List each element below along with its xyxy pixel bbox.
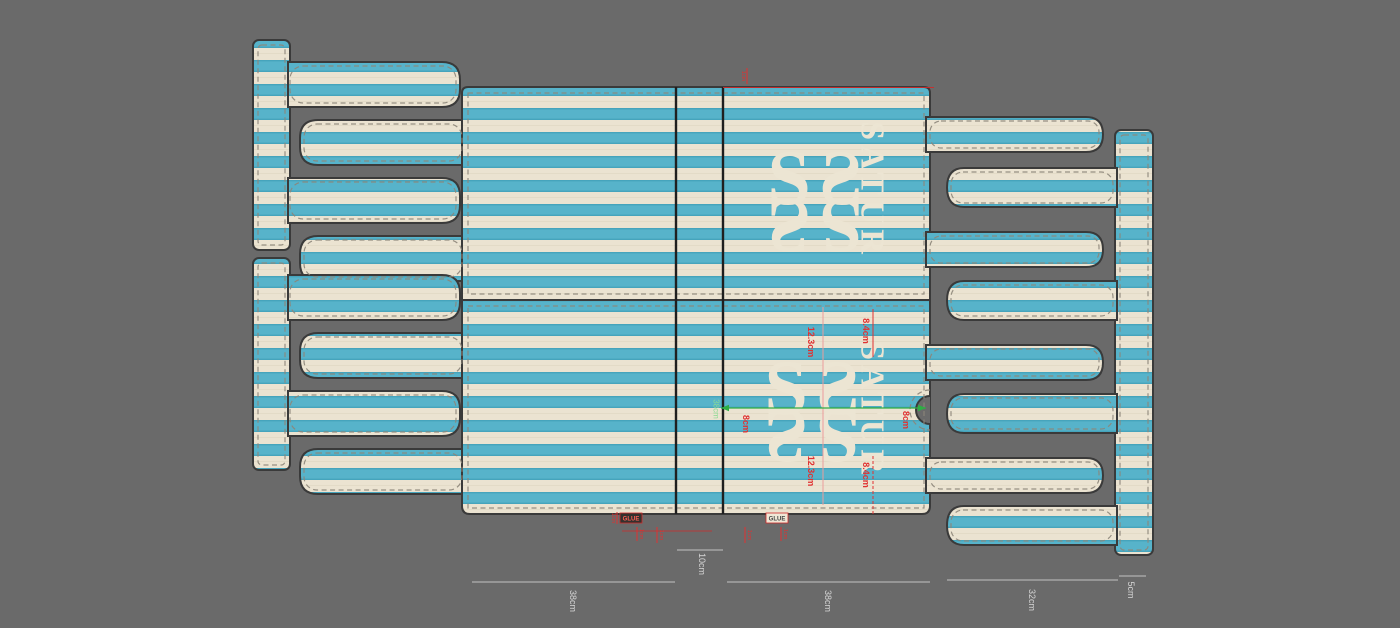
right-spine-flap[interactable] — [947, 168, 1117, 207]
dimension-label: 10cm — [697, 553, 707, 575]
micro-tick-label: 1cm — [746, 530, 752, 541]
right-spine-flap[interactable] — [947, 281, 1117, 320]
left-flap[interactable] — [288, 275, 460, 320]
brand-name-top: SATUR — [854, 121, 891, 259]
panel-flap-right[interactable] — [926, 345, 1103, 380]
design-canvas: S S S S SATUR S S S S SATUR 38cm 8.4cm 1… — [0, 0, 1400, 628]
left-flap[interactable] — [288, 391, 460, 436]
micro-tick-label: 1cm — [782, 529, 788, 540]
red-dim-label: 8.4cm — [861, 462, 871, 488]
dieline-canvas: S S S S SATUR S S S S SATUR 38cm 8.4cm 1… — [0, 0, 1400, 628]
left-flap[interactable] — [288, 62, 460, 107]
glue-label: GLUE — [623, 517, 640, 523]
micro-tick-label: 1cm — [610, 513, 616, 524]
red-dim-label: 8.4cm — [861, 318, 871, 344]
micro-tick-label: 1cm — [658, 530, 664, 541]
panel-flap-right[interactable] — [926, 458, 1103, 493]
red-dim-label: 8cm — [741, 415, 751, 433]
micro-tick-label: 1cm — [638, 529, 644, 540]
panel-flap-left[interactable] — [300, 333, 466, 378]
dimension-label: 5cm — [1126, 581, 1136, 598]
ornament-glyph: S — [767, 183, 810, 270]
left-flap[interactable] — [288, 178, 460, 223]
red-dim-label: 8cm — [901, 411, 911, 429]
dimension-label: 38cm — [823, 590, 833, 612]
panel-flap-left[interactable] — [300, 449, 466, 494]
right-spine-flap[interactable] — [947, 394, 1117, 433]
dimension-label: 38cm — [568, 590, 578, 612]
glue-label: GLUE — [769, 517, 786, 523]
panel-flap-left[interactable] — [300, 120, 466, 165]
red-dim-label: 12.3cm — [806, 456, 816, 487]
green-dim-label: 38cm — [712, 399, 721, 419]
panel-flap-right[interactable] — [926, 117, 1103, 152]
red-dim-label: 12.3cm — [806, 327, 816, 358]
right-spine-strip[interactable] — [1115, 130, 1153, 555]
dimension-label: 32cm — [1027, 589, 1037, 611]
ornament-glyph: S — [764, 393, 807, 480]
brand-logo-top[interactable]: S S S S SATUR — [767, 121, 890, 270]
right-spine-flap[interactable] — [947, 506, 1117, 545]
panel-flap-right[interactable] — [926, 232, 1103, 267]
micro-tick-label: 1cm — [740, 71, 746, 82]
brand-logo-bottom[interactable]: S S S S SATUR — [764, 341, 890, 480]
brand-name-bottom: SATUR — [854, 341, 891, 479]
